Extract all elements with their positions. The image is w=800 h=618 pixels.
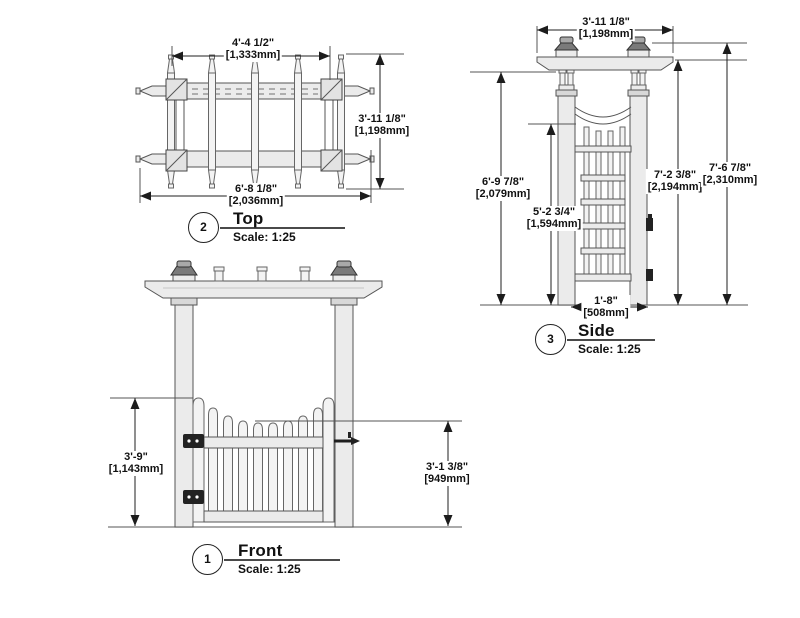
arbor-technical-drawing: 4'-4 1/2" [1,333mm] 3'-11 1/8" [1,198mm]… [0, 0, 800, 618]
dim-imperial-label: 5'-2 3/4" [527, 206, 581, 218]
dim-side-post-height: 6'-9 7/8" [2,079mm] [474, 176, 532, 201]
dim-imperial-label: 4'-4 1/2" [226, 37, 280, 49]
dim-side-arch-clearance: 5'-2 3/4" [1,594mm] [525, 206, 583, 231]
dim-imperial-label: 6'-8 1/8" [229, 183, 283, 195]
hinge-icon [183, 434, 204, 448]
dim-imperial-label: 3'-9" [109, 451, 163, 463]
dim-metric-label: [1,333mm] [226, 49, 280, 61]
dim-imperial-label: 6'-9 7/8" [476, 176, 530, 188]
view-scale-front: Scale: 1:25 [238, 562, 301, 576]
dim-top-overall-width: 6'-8 1/8" [2,036mm] [227, 183, 285, 208]
dim-side-beam-top-height: 7'-2 3/8" [2,194mm] [646, 169, 704, 194]
dim-front-gate-height: 3'-9" [1,143mm] [107, 451, 165, 476]
dim-side-overall-height: 7'-6 7/8" [2,310mm] [701, 162, 759, 187]
dim-metric-label: [2,194mm] [648, 181, 702, 193]
dim-imperial-label: 7'-2 3/8" [648, 169, 702, 181]
dim-metric-label: [949mm] [424, 473, 469, 485]
dim-top-depth: 3'-11 1/8" [1,198mm] [353, 113, 411, 138]
top-view-drawing [136, 55, 374, 188]
dim-metric-label: [2,036mm] [229, 195, 283, 207]
view-number-badge-side: 3 [535, 324, 566, 355]
dim-metric-label: [1,198mm] [355, 125, 409, 137]
hinge-icon [183, 490, 204, 504]
drawing-canvas [0, 0, 800, 618]
dim-metric-label: [2,310mm] [703, 174, 757, 186]
dim-side-beam-length: 3'-11 1/8" [1,198mm] [577, 16, 635, 41]
view-title-top: Top [233, 209, 264, 229]
dim-imperial-label: 7'-6 7/8" [703, 162, 757, 174]
dim-imperial-label: 3'-1 3/8" [424, 461, 469, 473]
dim-metric-label: [508mm] [583, 307, 628, 319]
view-title-front: Front [238, 541, 282, 561]
dim-metric-label: [1,198mm] [579, 28, 633, 40]
dim-imperial-label: 3'-11 1/8" [579, 16, 633, 28]
dim-metric-label: [2,079mm] [476, 188, 530, 200]
dim-front-picket-height: 3'-1 3/8" [949mm] [422, 461, 471, 486]
hinge-icon [646, 269, 653, 281]
view-number-badge-front: 1 [192, 544, 223, 575]
view-number-badge-top: 2 [188, 212, 219, 243]
view-scale-top: Scale: 1:25 [233, 230, 296, 244]
front-view-drawing [108, 261, 462, 527]
dim-imperial-label: 3'-11 1/8" [355, 113, 409, 125]
dim-metric-label: [1,594mm] [527, 218, 581, 230]
dim-side-opening-depth: 1'-8" [508mm] [581, 295, 630, 320]
gate-drawing [183, 398, 360, 522]
dim-top-inner-width: 4'-4 1/2" [1,333mm] [224, 37, 282, 62]
view-title-side: Side [578, 321, 615, 341]
dim-imperial-label: 1'-8" [583, 295, 628, 307]
dim-metric-label: [1,143mm] [109, 463, 163, 475]
view-scale-side: Scale: 1:25 [578, 342, 641, 356]
